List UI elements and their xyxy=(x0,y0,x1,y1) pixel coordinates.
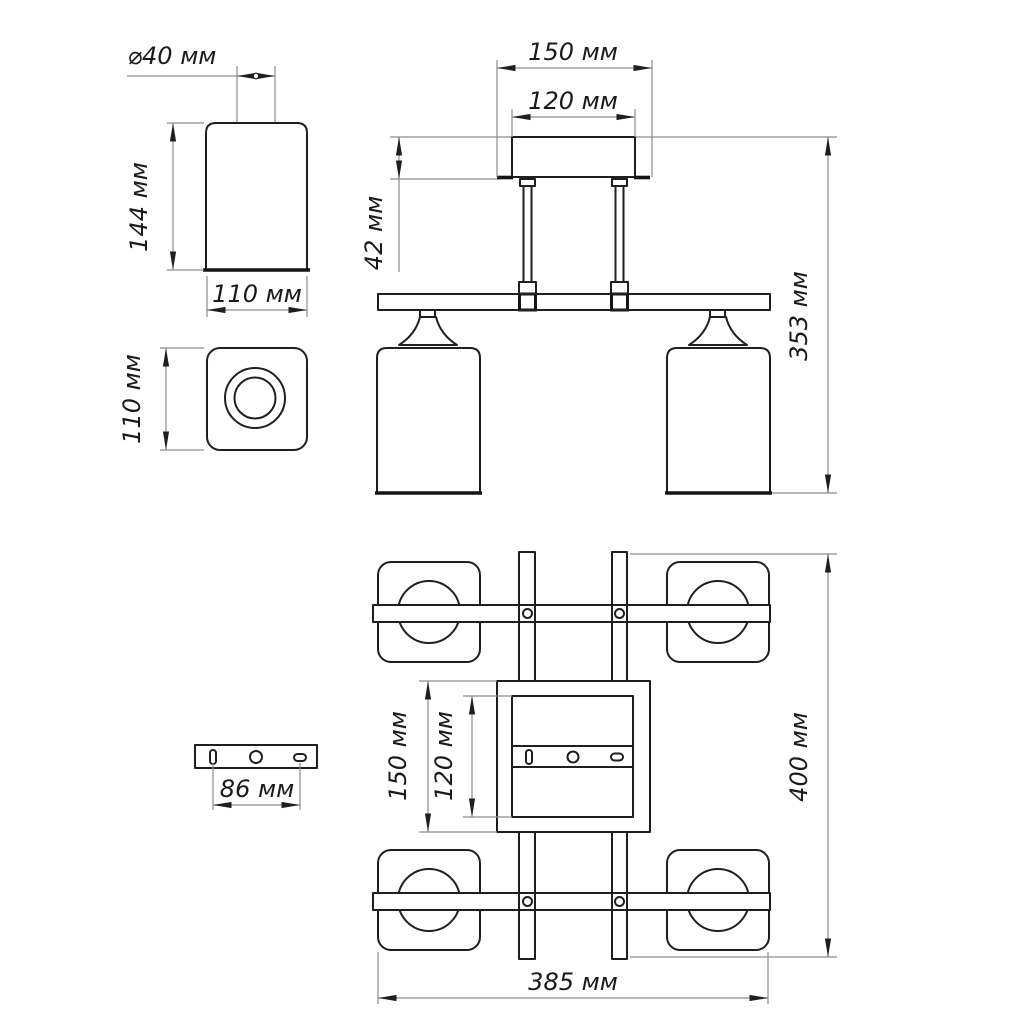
dim-shade-width: 110 мм xyxy=(207,276,307,317)
canopy-outer-square xyxy=(497,681,650,832)
stem-collar xyxy=(519,282,536,294)
technical-drawing-page: ⌀40 мм 144 мм 110 мм 110 мм xyxy=(0,0,1024,1024)
cross-bar-bottom xyxy=(373,893,770,910)
shade-outline xyxy=(206,123,307,270)
bracket-slot-vertical xyxy=(210,750,216,764)
canopy-body xyxy=(512,137,635,177)
shade-front-view: ⌀40 мм 144 мм 110 мм xyxy=(125,42,310,317)
shade-top-outline xyxy=(207,348,307,450)
dim-fixture-height-353: 353 мм xyxy=(785,137,828,493)
dim-label: 400 мм xyxy=(785,712,813,802)
dim-label: 150 мм xyxy=(384,711,412,801)
ceiling-lamp-drawing: ⌀40 мм 144 мм 110 мм 110 мм xyxy=(0,0,1024,1024)
screw-hole xyxy=(523,609,532,618)
stem-block xyxy=(612,294,628,310)
canopy-plan xyxy=(497,681,650,832)
holder-neck xyxy=(420,310,435,317)
dim-center-dot xyxy=(253,73,259,79)
fixture-front-view: 150 мм 120 мм 42 мм 353 мм xyxy=(360,38,837,493)
shade-outline xyxy=(667,348,770,493)
shade-outline xyxy=(377,348,480,493)
dim-label: 110 мм xyxy=(212,280,302,308)
dim-label: 86 мм xyxy=(220,775,294,803)
dim-label: 110 мм xyxy=(118,354,146,444)
stem-cap xyxy=(612,179,627,186)
fixture-plan-view: 150 мм 120 мм 400 мм 385 мм xyxy=(373,552,837,1004)
stem-collar xyxy=(611,282,628,294)
dim-label: 42 мм xyxy=(360,196,388,270)
dim-label: 150 мм xyxy=(528,38,618,66)
stem-block xyxy=(520,294,536,310)
stem-right xyxy=(611,179,628,310)
dim-label: 353 мм xyxy=(785,271,813,361)
stem-left xyxy=(519,179,536,310)
shade-top-view: 110 мм xyxy=(118,348,307,450)
cross-bar-top xyxy=(373,605,770,622)
dim-bracket-holes-86: 86 мм xyxy=(213,763,300,810)
dim-shade-top-size: 110 мм xyxy=(118,348,204,450)
dim-plan-width-385: 385 мм xyxy=(378,952,768,1004)
stem-cap xyxy=(520,179,535,186)
dim-label: 385 мм xyxy=(528,968,618,996)
bracket-hole-center xyxy=(250,751,262,763)
holder-neck xyxy=(710,310,725,317)
dim-canopy-height-42: 42 мм xyxy=(360,137,399,272)
shade-assembly-left xyxy=(375,310,482,493)
dim-label: ⌀40 мм xyxy=(128,42,217,70)
cross-bar xyxy=(378,294,770,310)
dim-shade-height: 144 мм xyxy=(125,123,204,270)
dim-plan-length-400: 400 мм xyxy=(785,554,828,957)
screw-hole xyxy=(615,897,624,906)
holder-trumpet xyxy=(689,317,747,345)
holder-trumpet xyxy=(399,317,457,345)
mounting-bracket-view: 86 мм xyxy=(195,745,317,810)
dim-canopy-body-120: 120 мм xyxy=(512,87,635,137)
screw-hole xyxy=(523,897,532,906)
dim-label: 120 мм xyxy=(430,711,458,801)
dim-label: 120 мм xyxy=(528,87,618,115)
dim-label: 144 мм xyxy=(125,162,153,252)
shade-assembly-right xyxy=(665,310,772,493)
screw-hole xyxy=(615,609,624,618)
bracket-slot-horizontal xyxy=(294,754,306,761)
shade-hole-inner-circle xyxy=(235,378,276,419)
dim-shade-hole-diameter: ⌀40 мм xyxy=(127,42,275,122)
